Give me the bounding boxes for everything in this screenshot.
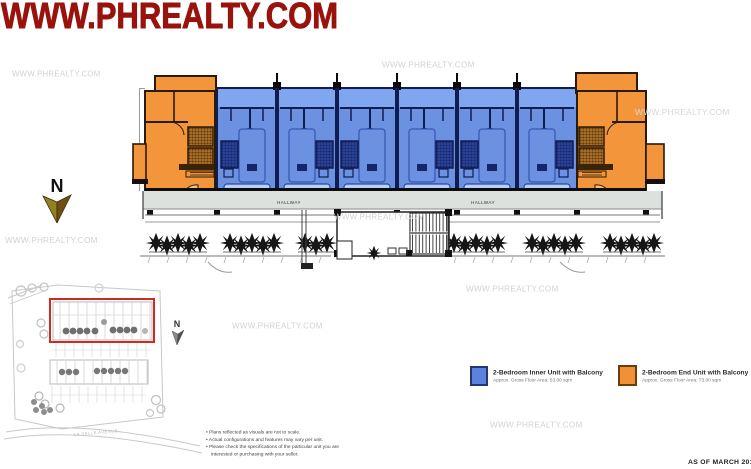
svg-text:• Please check the specificati: • Please check the specifications of the… xyxy=(206,444,339,450)
svg-text:WWW.PHREALTY.COM: WWW.PHREALTY.COM xyxy=(635,107,730,117)
svg-text:2-Bedroom End Unit with Balcon: 2-Bedroom End Unit with Balcony xyxy=(642,370,749,377)
svg-text:HALLWAY: HALLWAY xyxy=(471,200,495,205)
svg-text:WWW.PHREALTY.COM: WWW.PHREALTY.COM xyxy=(334,213,425,222)
svg-text:AS OF MARCH 2011: AS OF MARCH 2011 xyxy=(688,459,751,466)
svg-text:HALLWAY: HALLWAY xyxy=(277,200,301,205)
svg-text:Approx. Gross Floor Area: 73.0: Approx. Gross Floor Area: 73.00 sqm xyxy=(642,378,721,384)
svg-text:WWW.PHREALTY.COM: WWW.PHREALTY.COM xyxy=(490,421,583,430)
svg-text:interested or purchasing with: interested or purchasing with your selle… xyxy=(211,451,299,457)
svg-text:2-Bedroom Inner Unit with Balc: 2-Bedroom Inner Unit with Balcony xyxy=(493,370,603,377)
svg-text:WWW.PHREALTY.COM: WWW.PHREALTY.COM xyxy=(5,236,98,245)
svg-text:WWW.PHREALTY.COM: WWW.PHREALTY.COM xyxy=(12,70,101,79)
svg-text:N: N xyxy=(174,319,181,329)
svg-text:N: N xyxy=(51,176,64,196)
svg-text:WWW.PHREALTY.COM: WWW.PHREALTY.COM xyxy=(1,0,338,37)
svg-text:WWW.PHREALTY.COM: WWW.PHREALTY.COM xyxy=(232,322,323,331)
svg-text:• Plans reflected as visuals a: • Plans reflected as visuals are not to … xyxy=(206,430,300,436)
svg-text:WWW.PHREALTY.COM: WWW.PHREALTY.COM xyxy=(466,285,559,294)
svg-text:LA SALLE AVENUE: LA SALLE AVENUE xyxy=(74,428,119,437)
svg-text:WWW.PHREALTY.COM: WWW.PHREALTY.COM xyxy=(382,61,475,70)
svg-text:• Actual configurations and fe: • Actual configurations and features may… xyxy=(206,437,323,443)
svg-text:Approx. Gross Floor Area: 53.0: Approx. Gross Floor Area: 53.00 sqm xyxy=(493,378,572,384)
